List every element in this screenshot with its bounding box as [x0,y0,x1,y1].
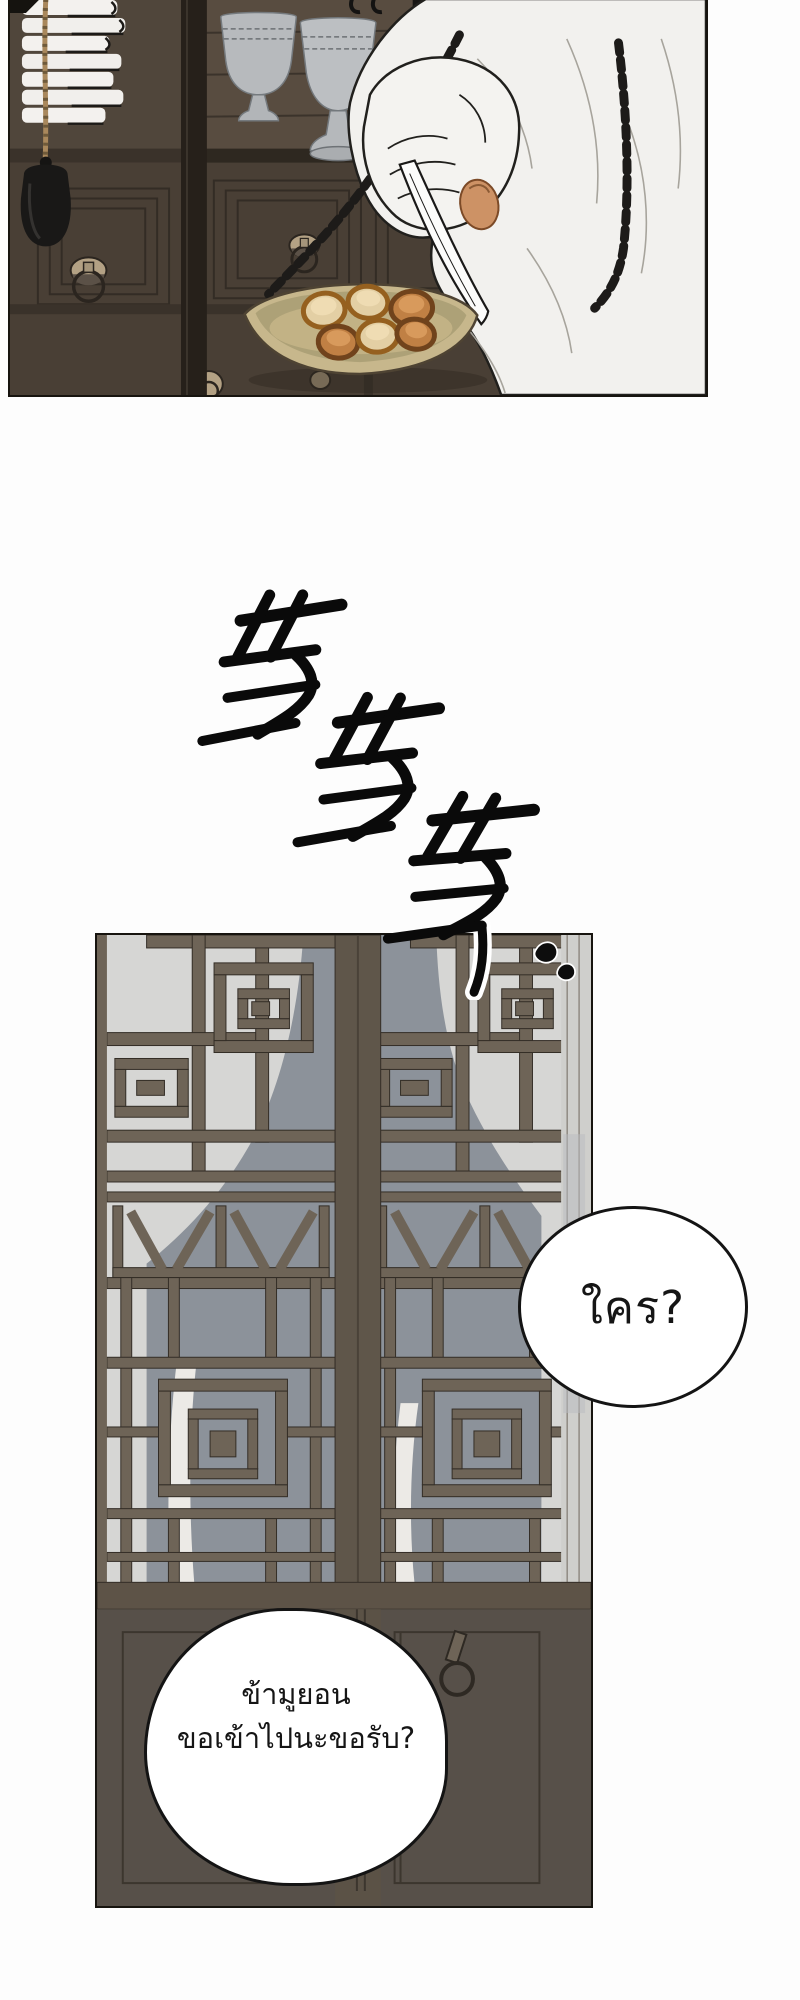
speech-bubble-request: ข้ามูยอน ขอเข้าไปนะขอรับ? [144,1608,448,1886]
speech-request-line2: ขอเข้าไปนะขอรับ? [177,1717,415,1761]
medicine-pieces [301,284,436,359]
speech-request-line1: ข้ามูยอน [241,1673,350,1717]
panel-apothecary-scene [8,0,708,397]
speech-who-text: ใคร? [581,1271,685,1343]
sfx-knock-sound [185,550,585,1000]
apothecary-illustration [10,0,706,395]
gripping-hand [363,57,519,232]
sfx-knock-strokes [185,550,585,1000]
speech-bubble-who: ใคร? [518,1206,748,1408]
cabinet-post [181,0,207,395]
comic-page: ใคร? ข้ามูยอน ขอเข้าไปนะขอรับ? [0,0,800,2000]
scale-pan [245,284,488,393]
